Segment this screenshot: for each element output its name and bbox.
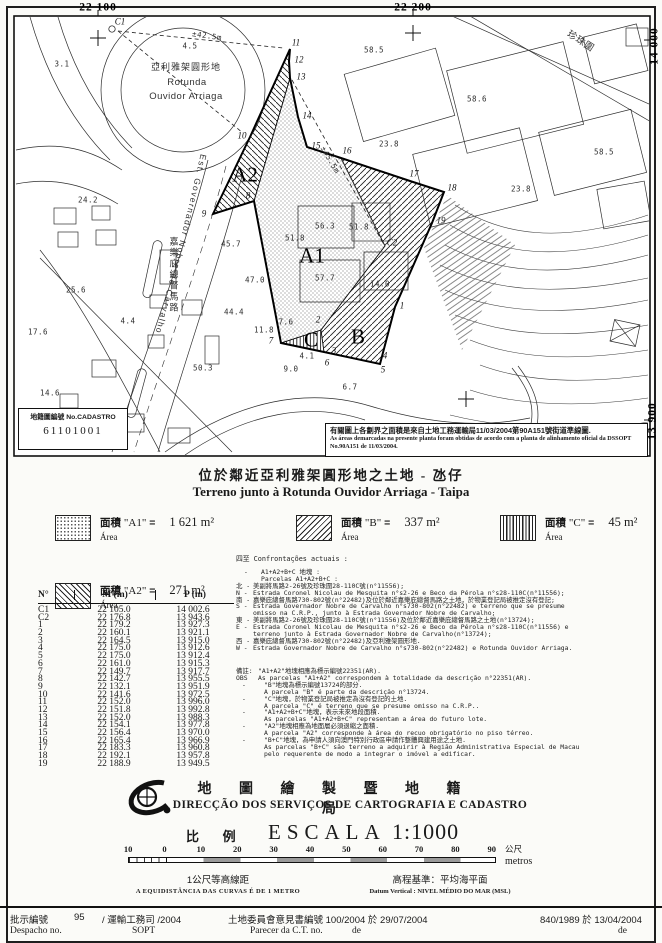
scalebar-tick-label: 0	[146, 844, 182, 854]
parecer-de: de	[352, 926, 361, 936]
swatch-B-hatch	[296, 515, 332, 541]
map-label: 3.1	[54, 60, 69, 68]
coordinate-table-body: C122 105.014 002.6 C222 176.813 943.6 12…	[38, 607, 234, 768]
vertical-datum-zh: 高程基準：平均海平面	[330, 872, 550, 886]
cadastro-number: 61101001	[19, 424, 127, 439]
note-zh: 有關圖上各劃界之面積是來自土地工務運輸局11/03/2004第90A151號街道…	[330, 426, 643, 435]
swatch-C-vertical	[500, 515, 536, 541]
map-label: 22 200	[394, 2, 432, 14]
equidistance-zh: 1公尺等高線距	[118, 872, 318, 886]
confrontation-lines: -A1+A2+B+C 地塊 : Parcelas A1+A2+B+C : 北 -…	[236, 569, 660, 652]
table-row: 1922 188.913 949.5	[38, 761, 234, 769]
map-label: 12	[295, 56, 304, 65]
scalebar-tick-label: 40	[292, 844, 328, 854]
cadastral-plan-page: Est. Governador Nobre de Carvalho 22 100…	[0, 0, 662, 943]
map-label: B	[351, 327, 365, 348]
map-label: 58.6	[467, 95, 487, 103]
map-label: 23.8	[511, 185, 531, 193]
map-label: 44.4	[224, 308, 244, 316]
scalebar-unit-pt: metros	[505, 856, 532, 867]
map-label: 11	[292, 39, 300, 48]
map-label: 50.3	[193, 364, 213, 372]
map-label: 7.6	[278, 318, 293, 326]
map-label: 4.5	[182, 42, 197, 50]
map-label: 4.4	[120, 317, 135, 325]
map-label: 16	[343, 147, 352, 156]
map-label: 3	[332, 347, 337, 356]
map-label: 18	[448, 184, 457, 193]
despacho-label-pt: Despacho no.	[10, 926, 62, 936]
reference-right-de: de	[618, 926, 627, 936]
footer-divider	[0, 906, 662, 908]
vertical-datum-pt: Datum Vertical : NIVEL MÉDIO DO MAR (MSL…	[320, 888, 560, 895]
plan-title-pt: Terreno junto à Rotunda Ouvidor Arriaga …	[0, 484, 662, 500]
map-label: 8	[246, 192, 251, 201]
note-line: As parcelas "B+C" são terreno a adquirir…	[236, 744, 660, 758]
scalebar-subdivisions	[129, 858, 167, 862]
map-label: 5	[381, 366, 386, 375]
map-label: 57.7	[315, 274, 335, 282]
map-label: 14.6	[40, 389, 60, 397]
map-label: 25.6	[66, 286, 86, 294]
map-label: 6.7	[342, 383, 357, 391]
scalebar-tick-label: 60	[365, 844, 401, 854]
map-label: 4.1	[299, 352, 314, 360]
map-label: 15	[312, 142, 321, 151]
map-label: 51.8	[349, 223, 369, 231]
parecer-pt: Parecer da C.T. no.	[250, 926, 323, 936]
map-label: 7	[269, 337, 274, 346]
map-label: 14	[303, 112, 312, 121]
map-label: 51.8	[285, 234, 305, 242]
parecer-zh: 土地委員會意見書編號 100/2004 於 29/07/2004	[228, 912, 428, 926]
map-label: C1	[115, 18, 126, 27]
scale-label-zh: 比 例	[186, 826, 246, 845]
map-label: 17.6	[28, 328, 48, 336]
map-label: 23.8	[379, 140, 399, 148]
map-label: C	[304, 330, 318, 351]
map-label: 嘉樂庇總督馬路	[168, 237, 181, 314]
despacho-label-zh: 批示編號	[10, 912, 48, 926]
plan-title-zh: 位於鄰近亞利雅架圓形地之土地 - 氹仔	[0, 464, 662, 484]
scalebar-main	[167, 858, 495, 862]
scalebar-tick-label: 90	[474, 844, 510, 854]
reference-right: 840/1989 於 13/04/2004	[540, 912, 642, 926]
map-label: 亞利雅架圓形地	[151, 63, 221, 73]
swatch-A1-stipple	[55, 515, 91, 541]
map-label: 9.0	[283, 365, 298, 373]
scalebar-ticks: 100102030405060708090	[110, 844, 510, 854]
cadastro-number-box: 地籍圖編號 No.CADASTRO 61101001	[18, 408, 128, 450]
scalebar-tick-label: 20	[219, 844, 255, 854]
scale-ratio: 1:1000	[392, 819, 459, 845]
map-label: 58.5	[594, 148, 614, 156]
coordinate-table-header: N°M (m)P (m)	[38, 590, 234, 604]
despacho-number: 95	[74, 912, 85, 923]
legend-item-C: 面積 "C" =45 m² Área	[500, 515, 637, 542]
org-name-pt: DIRECÇÃO DOS SERVIÇOS DE CARTOGRAFIA E C…	[115, 799, 585, 811]
despacho-dept-pt: SOPT	[132, 926, 155, 936]
cadastro-label: 地籍圖編號 No.CADASTRO	[19, 413, 127, 424]
notes-block: 備註:"A1+A2"地塊相應為標示編號22351(AR). OBSAs parc…	[236, 668, 660, 758]
map-label: 1	[400, 302, 405, 311]
scalebar-tick-label: 30	[255, 844, 291, 854]
map-label: 56.3	[315, 222, 335, 230]
map-label: 58.5	[364, 46, 384, 54]
confrontations-block: 四至 Confrontações actuais : -A1+A2+B+C 地塊…	[236, 556, 660, 652]
map-label: 9	[202, 210, 207, 219]
scalebar-tick-label: 10	[183, 844, 219, 854]
scale-label-pt: ESCALA	[268, 820, 386, 845]
map-label: A1	[299, 246, 325, 267]
map-label: 14 000	[649, 27, 661, 65]
scalebar-tick-label: 10	[110, 844, 146, 854]
map-label: 47.0	[245, 276, 265, 284]
map-label: 24.2	[78, 196, 98, 204]
org-name-zh: 地 圖 繪 製 暨 地 籍 局	[180, 778, 490, 818]
legend-item-B: 面積 "B" =337 m² Área	[296, 515, 440, 542]
alignment-note-box: 有關圖上各劃界之面積是來自土地工務運輸局11/03/2004第90A151號街道…	[325, 423, 648, 457]
despacho-dept-zh: / 運輸工務司 /2004	[102, 912, 181, 926]
scalebar-tick-label: 70	[401, 844, 437, 854]
map-label: 19	[437, 217, 446, 226]
map-label: 17	[410, 170, 419, 179]
confrontation-line: W -Estrada Governador Nobre de Carvalho …	[236, 645, 660, 652]
scalebar-tick-label: 50	[328, 844, 364, 854]
map-label: 10	[238, 132, 247, 141]
dscc-logo-icon	[122, 776, 174, 820]
map-label: 13	[297, 73, 306, 82]
map-label: 45.7	[221, 240, 241, 248]
scalebar	[128, 857, 496, 863]
map-label: 14.0	[370, 280, 390, 288]
map-label: C2	[387, 239, 398, 248]
coordinate-table: N°M (m)P (m) C122 105.014 002.6 C222 176…	[38, 590, 234, 768]
map-label: 13 900	[647, 402, 659, 440]
map-label: 11.8	[254, 326, 274, 334]
confrontations-heading: 四至 Confrontações actuais :	[236, 556, 660, 563]
confrontation-line: E -Estrada Coronel Nicolau de Mesquita n…	[236, 624, 660, 638]
map-label: 22 100	[79, 2, 117, 14]
map-label: 2	[316, 316, 321, 325]
map-label: A2	[232, 165, 258, 186]
note-pt: As áreas demarcadas na presente planta f…	[330, 435, 643, 451]
map-label: 6	[325, 359, 330, 368]
map-label: Ouvidor Arriaga	[149, 92, 223, 102]
map-label: 4	[383, 352, 388, 361]
map-label: Rotunda	[167, 78, 206, 88]
legend-item-A1: 面積 "A1" =1 621 m² Área	[55, 515, 214, 542]
scalebar-tick-label: 80	[437, 844, 473, 854]
